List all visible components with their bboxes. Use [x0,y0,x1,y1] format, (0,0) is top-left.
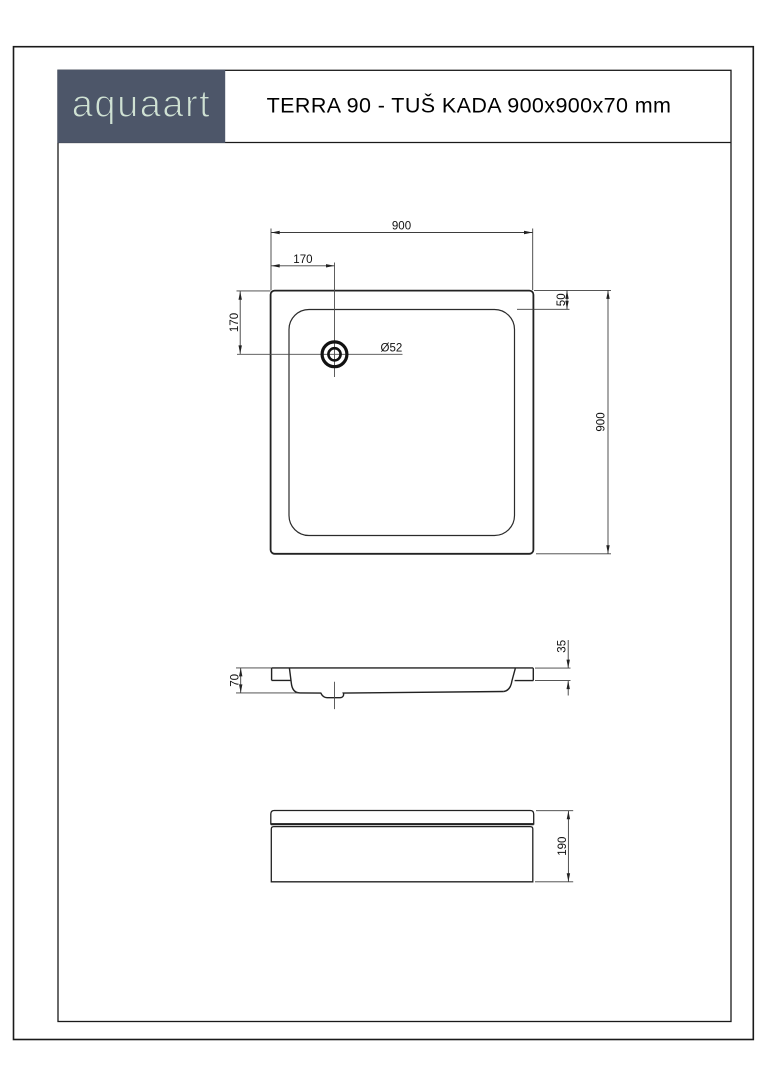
svg-text:900: 900 [595,412,607,431]
svg-text:Ø52: Ø52 [381,343,403,355]
svg-text:900: 900 [392,221,411,233]
svg-text:35: 35 [557,640,569,653]
svg-text:190: 190 [557,837,569,856]
svg-text:170: 170 [229,313,241,332]
svg-text:170: 170 [293,254,312,266]
svg-text:aquaart: aquaart [72,84,211,126]
svg-text:TERRA 90 - TUŠ KADA 900x900x70: TERRA 90 - TUŠ KADA 900x900x70 mm [267,93,672,118]
svg-text:50: 50 [556,293,568,306]
svg-text:70: 70 [230,674,242,687]
